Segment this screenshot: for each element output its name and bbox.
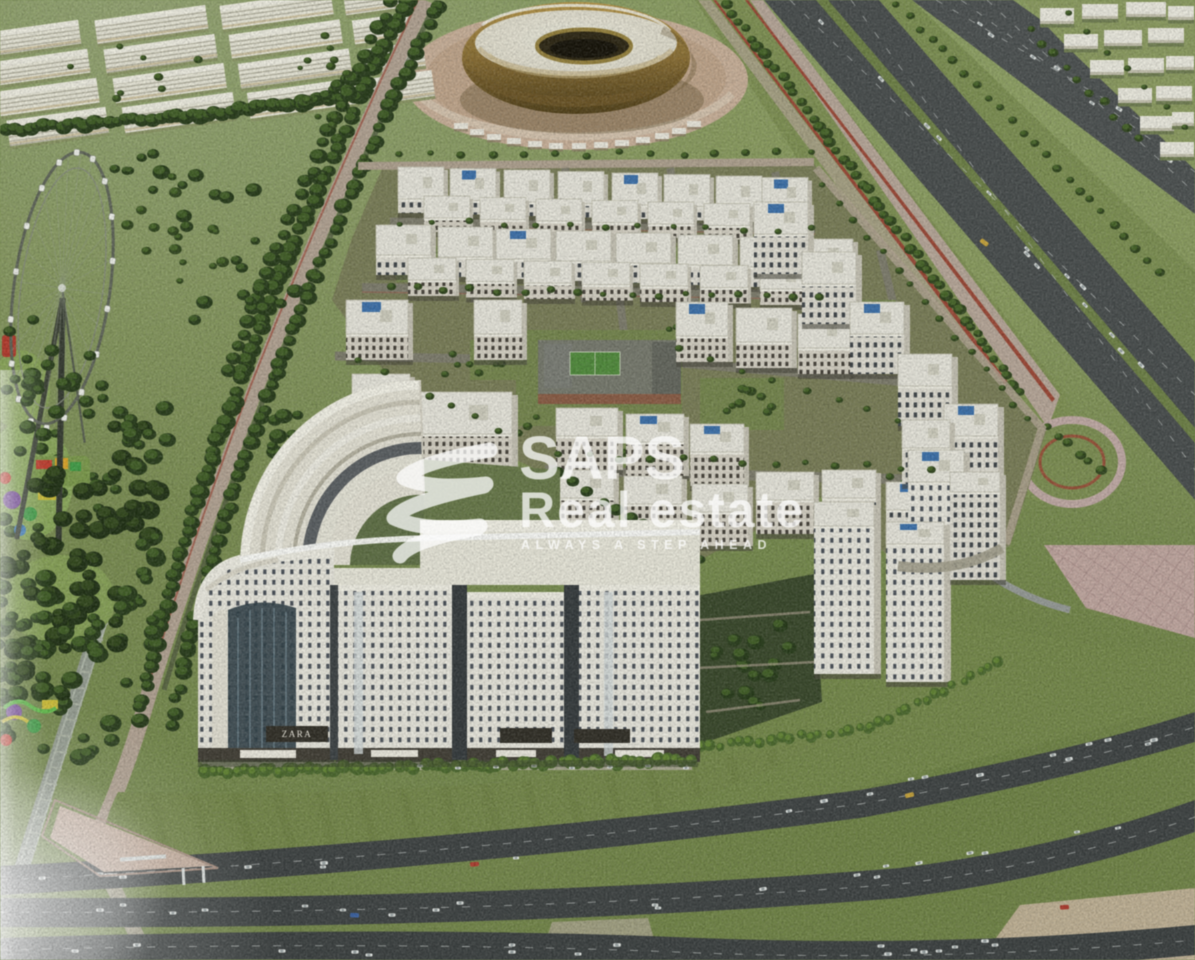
svg-text:ALWAYS A STEP AHEAD: ALWAYS A STEP AHEAD bbox=[521, 538, 772, 552]
svg-text:Real estate: Real estate bbox=[519, 482, 805, 538]
